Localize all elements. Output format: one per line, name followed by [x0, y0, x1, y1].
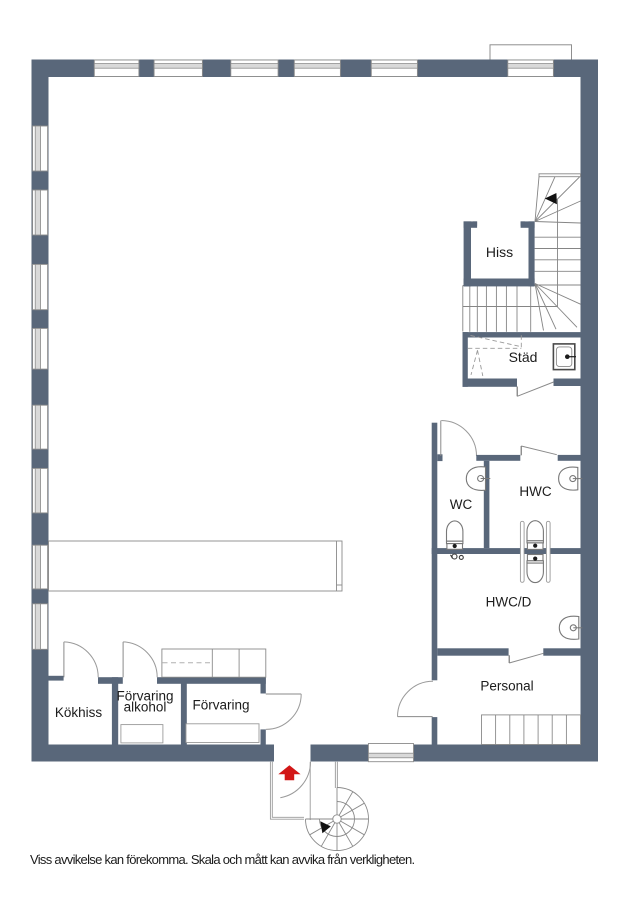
svg-text:HWC: HWC	[519, 484, 551, 499]
svg-text:WC: WC	[450, 497, 473, 512]
svg-text:HWC/D: HWC/D	[486, 595, 532, 610]
svg-text:Hiss: Hiss	[486, 244, 513, 260]
svg-text:Kökhiss: Kökhiss	[55, 705, 103, 720]
svg-text:Städ: Städ	[509, 349, 538, 365]
svg-text:Förvaring: Förvaring	[192, 698, 249, 713]
svg-text:alkohol: alkohol	[124, 700, 167, 715]
svg-text:Viss avvikelse kan förekomma.: Viss avvikelse kan förekomma. Skala och …	[30, 852, 414, 867]
svg-text:Personal: Personal	[480, 679, 533, 694]
